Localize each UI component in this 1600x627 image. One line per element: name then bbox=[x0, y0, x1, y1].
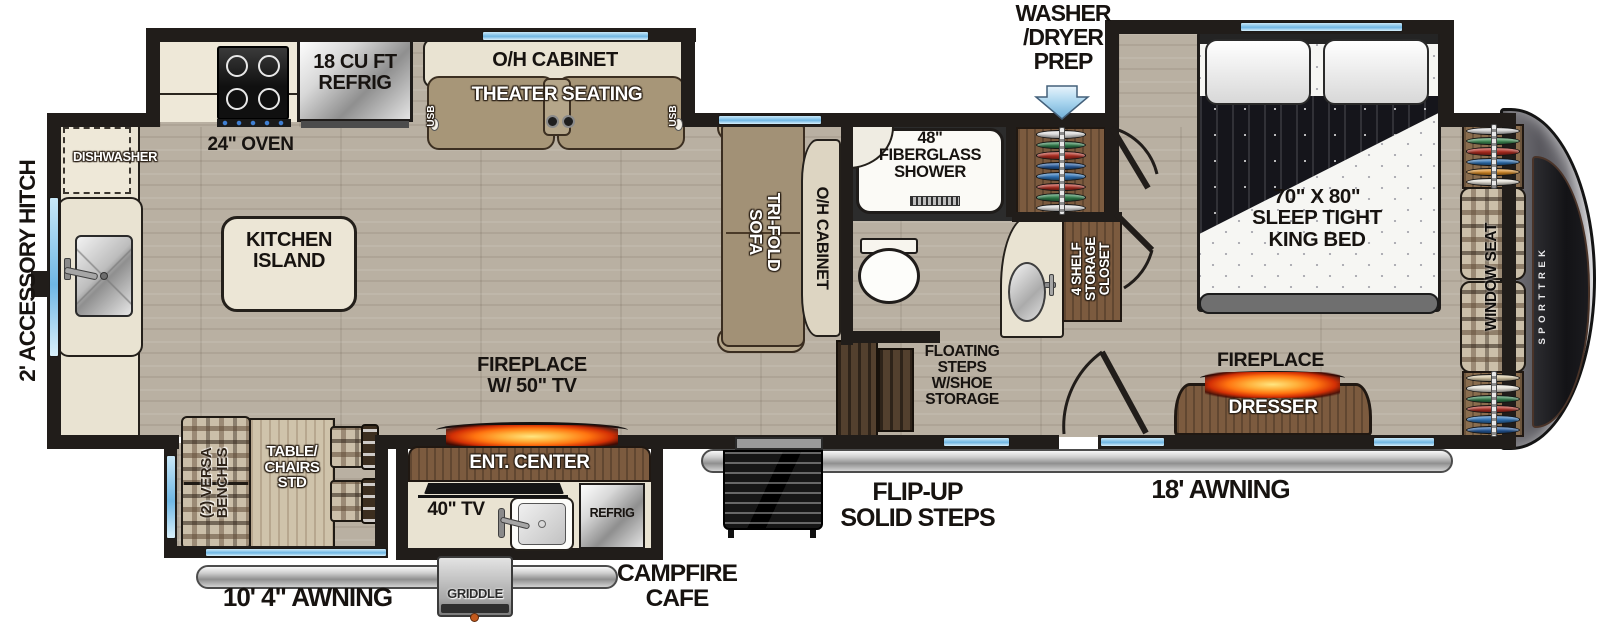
hanger-icon bbox=[1036, 172, 1086, 181]
wall-outdoor-kitchen-left bbox=[396, 446, 408, 560]
hanger-icon bbox=[1466, 147, 1520, 155]
dresser-label: DRESSER bbox=[1174, 398, 1372, 418]
kitchen-island-label: KITCHEN ISLAND bbox=[221, 230, 357, 272]
wall-bedroom-jog-right bbox=[1440, 20, 1454, 127]
hanger-rack-bottom bbox=[1466, 373, 1520, 435]
window bbox=[482, 31, 649, 41]
window bbox=[718, 115, 822, 125]
hanger-icon bbox=[1036, 162, 1086, 171]
shelf-closet-label: 4 SHELF STORAGE CLOSET bbox=[1070, 219, 1114, 319]
wall-bath-left bbox=[841, 127, 853, 345]
hanger-icon bbox=[1466, 384, 1520, 392]
dinette-table-label: TABLE/ CHAIRS STD bbox=[249, 444, 335, 491]
pillow bbox=[1323, 39, 1429, 105]
burner bbox=[226, 55, 248, 77]
griddle-base bbox=[441, 604, 509, 613]
dishwasher-label: DISHWASHER bbox=[54, 150, 176, 164]
wall-dinette-slide-right bbox=[375, 441, 388, 558]
sink-drain bbox=[100, 272, 108, 280]
window-seat-label: WINDOW SEAT bbox=[1484, 192, 1502, 362]
window bbox=[1240, 22, 1403, 32]
hanger-icon bbox=[1466, 168, 1520, 176]
cooktop bbox=[217, 46, 289, 120]
bedroom-fireplace-glow bbox=[1205, 372, 1340, 398]
outdoor-sink-drain bbox=[538, 520, 546, 528]
hanger-icon bbox=[1466, 405, 1520, 413]
hanger-icon bbox=[1036, 183, 1086, 192]
hanger-icon bbox=[1036, 193, 1086, 202]
sofa-cabinet-label: O/H CABINET bbox=[812, 153, 830, 323]
hanger-icon bbox=[1036, 151, 1086, 160]
hanger-icon bbox=[1466, 374, 1520, 382]
hanger-rack-wd bbox=[1036, 129, 1086, 213]
hanger-icon bbox=[1466, 415, 1520, 423]
wall-top-left bbox=[47, 113, 160, 127]
usb-label-right: USB bbox=[669, 96, 681, 136]
campfire-label: CAMPFIRE CAFE bbox=[607, 561, 747, 612]
outdoor-tv bbox=[424, 483, 564, 494]
griddle-label: GRIDDLE bbox=[437, 587, 513, 601]
bed-label: 70" X 80" SLEEP TIGHT KING BED bbox=[1207, 186, 1427, 250]
cupholder bbox=[546, 115, 559, 128]
shower-drain bbox=[910, 196, 960, 206]
toilet-bowl bbox=[858, 248, 920, 304]
hanger-icon bbox=[1036, 141, 1086, 150]
outdoor-refrig-label: REFRIG bbox=[579, 507, 645, 520]
wd-prep-label: WASHER /DRYER PREP bbox=[1003, 2, 1123, 74]
brand-label: SPORTTREK bbox=[1538, 175, 1552, 415]
wall-bath-half bbox=[841, 331, 940, 343]
hanger-rack-top bbox=[1466, 126, 1520, 187]
bedroom-fireplace-label: FIREPLACE bbox=[1188, 350, 1353, 370]
hanger-icon bbox=[1466, 137, 1520, 145]
burner bbox=[226, 88, 248, 110]
outdoor-tv-label: 40" TV bbox=[410, 500, 502, 520]
griddle-knob bbox=[470, 613, 479, 622]
floating-steps-lower bbox=[836, 340, 878, 438]
chair-seat bbox=[330, 480, 364, 522]
bath-sink bbox=[1008, 262, 1046, 322]
oven-label: 24" OVEN bbox=[193, 135, 308, 155]
wall-bottom-left bbox=[47, 435, 179, 449]
ent-center-label: ENT. CENTER bbox=[408, 453, 651, 473]
oven-knob-strip bbox=[217, 119, 291, 127]
hanger-icon bbox=[1036, 204, 1086, 213]
bath-faucet-handle bbox=[1049, 274, 1054, 296]
shower-label: 48" FIBERGLASS SHOWER bbox=[860, 130, 1000, 181]
outdoor-tv-stand bbox=[418, 495, 568, 498]
entry-platform bbox=[735, 437, 823, 450]
versa-bench-label: (2) VERSA BENCHES bbox=[199, 418, 233, 548]
usb-label-left: USB bbox=[427, 96, 439, 136]
window bbox=[1100, 437, 1165, 447]
flip-steps-label: FLIP-UP SOLID STEPS bbox=[815, 479, 1020, 531]
floorplan-diagram: SPORTTREK GRIDDLE DISHWASHER bbox=[0, 0, 1600, 627]
steps-foot-right bbox=[810, 530, 816, 538]
refrigerator-vent bbox=[301, 121, 409, 128]
wall-shower-divider bbox=[1006, 127, 1016, 217]
main-awning-label: 18' AWNING bbox=[1128, 476, 1313, 503]
floating-steps-label: FLOATING STEPS W/SHOE STORAGE bbox=[903, 344, 1021, 408]
flip-up-steps bbox=[723, 450, 823, 530]
theater-label: THEATER SEATING bbox=[437, 85, 677, 105]
sofa-label: TRI-FOLD SOFA bbox=[741, 170, 783, 294]
window bbox=[1373, 437, 1435, 447]
window bbox=[166, 455, 176, 539]
cupholder bbox=[562, 115, 575, 128]
hanger-icon bbox=[1466, 426, 1520, 434]
window bbox=[205, 548, 387, 557]
refrigerator-label: 18 CU FT REFRIG bbox=[300, 52, 410, 94]
burner bbox=[258, 55, 280, 77]
fireplace-tv-label: FIREPLACE W/ 50" TV bbox=[437, 355, 627, 397]
hanger-icon bbox=[1466, 395, 1520, 403]
hanger-icon bbox=[1036, 130, 1086, 139]
pillow bbox=[1205, 39, 1311, 105]
wall-outdoor-kitchen-right bbox=[651, 446, 663, 560]
steps-foot-left bbox=[728, 530, 734, 538]
hanger-icon bbox=[1466, 127, 1520, 135]
burner bbox=[258, 88, 280, 110]
hitch-label: 2' ACCESSORY HITCH bbox=[16, 121, 44, 421]
hanger-icon bbox=[1466, 158, 1520, 166]
window bbox=[49, 197, 59, 357]
rear-awning-label: 10' 4" AWNING bbox=[200, 584, 415, 611]
chair-seat bbox=[330, 426, 364, 468]
window bbox=[943, 437, 1010, 447]
bed-bench bbox=[1199, 293, 1439, 314]
oh-cabinet-label: O/H CABINET bbox=[455, 50, 655, 71]
hanger-icon bbox=[1466, 178, 1520, 186]
